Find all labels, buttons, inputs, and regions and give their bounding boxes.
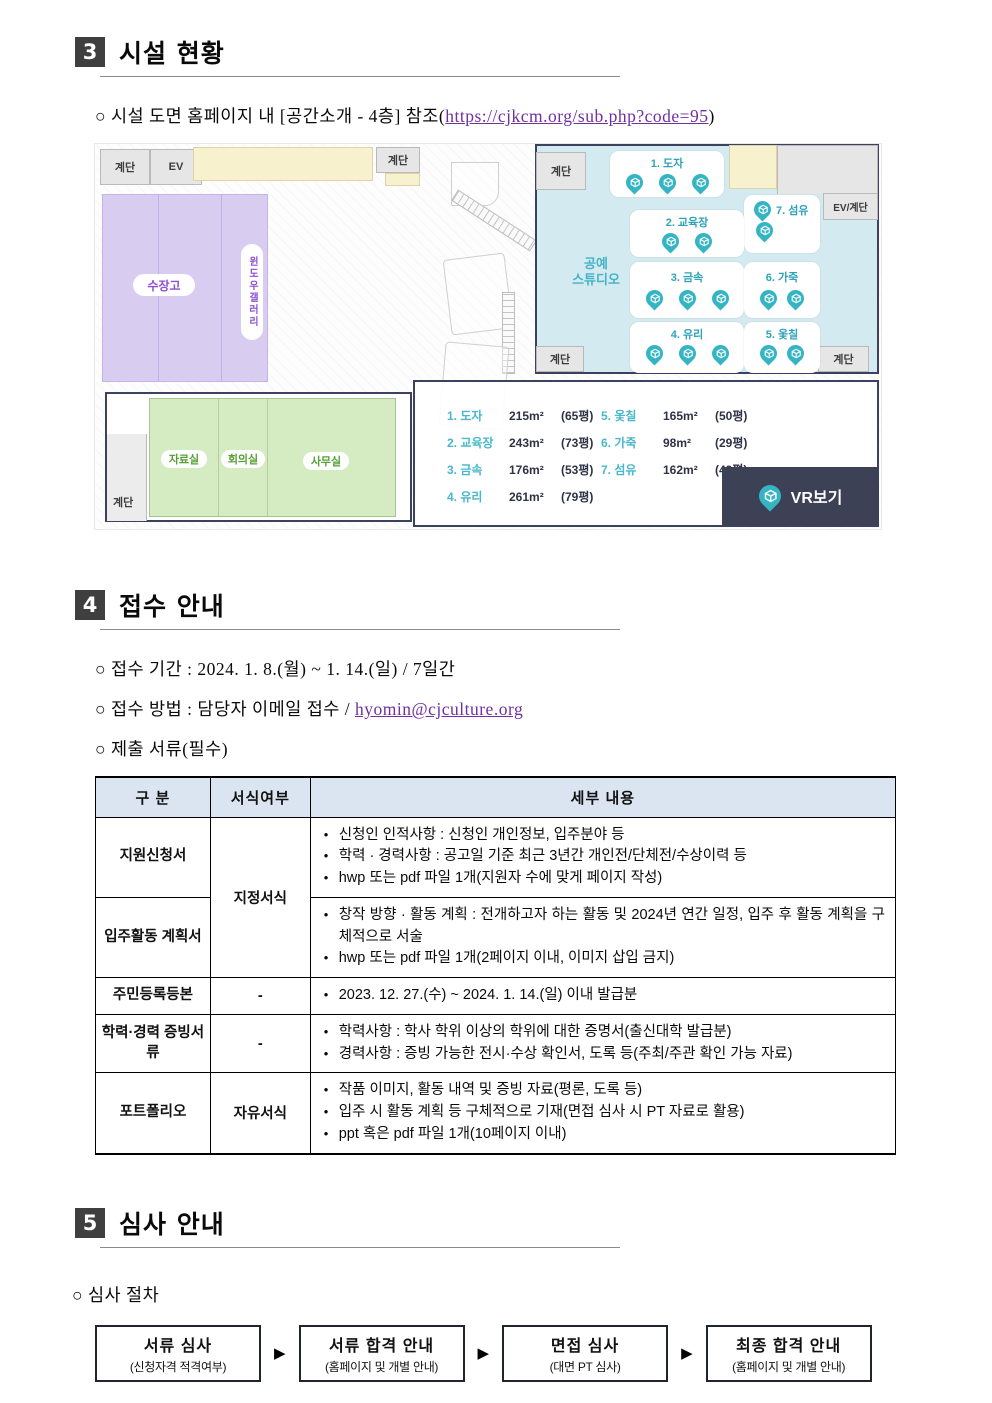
circle-bullet-icon: ○: [95, 659, 106, 679]
document-page: 3 시설 현황 ○ 시설 도면 홈페이지 내 [공간소개 - 4층] 참조(ht…: [0, 0, 992, 1382]
location-pin-icon: [642, 341, 666, 365]
reception-email-link[interactable]: hyomin@cjculture.org: [355, 699, 523, 719]
row-category: 지원신청서: [96, 817, 211, 897]
section-review: 5 심사 안내: [75, 1205, 992, 1248]
reception-method: ○ 접수 방법 : 담당자 이메일 접수 / hyomin@cjculture.…: [95, 696, 992, 721]
row-detail: 창작 방향 · 활동 계획 : 전개하고자 하는 활동 및 2024년 연간 일…: [310, 897, 895, 977]
flow-step-document-review: 서류 심사 (신청자격 적격여부): [95, 1325, 261, 1382]
section-number-badge: 4: [75, 590, 105, 620]
zone-glass: 4. 유리: [630, 322, 744, 373]
zone-metal: 3. 금속: [630, 262, 744, 318]
storage-label: 수장고: [133, 274, 195, 296]
vr-view-button: VR보기: [722, 467, 879, 525]
archive-room-label: 자료실: [161, 450, 207, 468]
row-format: -: [210, 978, 310, 1015]
circle-bullet-icon: ○: [95, 739, 106, 759]
location-pin-icon: [750, 197, 774, 221]
stairs-room: 계단: [818, 346, 869, 372]
stairs-room: 계단: [100, 149, 150, 185]
review-procedure-label: ○ 심사 절차: [72, 1282, 992, 1307]
location-pin-icon: [756, 341, 780, 365]
row-category: 주민등록등본: [96, 978, 211, 1015]
reception-period: ○ 접수 기간 : 2024. 1. 8.(월) ~ 1. 14.(일) / 7…: [95, 656, 992, 681]
review-process-flow: 서류 심사 (신청자격 적격여부) ▶ 서류 합격 안내 (홈페이지 및 개별 …: [95, 1325, 992, 1382]
row-category: 포트폴리오: [96, 1073, 211, 1154]
flow-arrow-icon: ▶: [478, 1344, 490, 1362]
reception-docs: ○ 제출 서류(필수): [95, 736, 992, 761]
table-header-row: 구 분 서식여부 세부 내용: [96, 777, 896, 817]
ev-stairs-label: EV/계단: [823, 193, 878, 220]
legend-item: 6. 가죽98m²(29평): [601, 429, 747, 456]
section-number-badge: 5: [75, 1208, 105, 1238]
stairs-room: 계단: [536, 346, 584, 372]
stairs-label: 계단: [113, 494, 133, 510]
section-facility: 3 시설 현황: [75, 34, 992, 77]
row-format: 자유서식: [210, 1073, 310, 1154]
floorplan-image: 계단 EV 계단 수장고 윈도우갤러리 계단 계단 EV/계단 계단 공예 스튜: [95, 144, 881, 529]
section-underline: [100, 76, 620, 77]
location-pin-icon: [708, 341, 732, 365]
column-header-detail: 세부 내용: [310, 777, 895, 817]
section-title: 시설 현황: [119, 34, 225, 70]
flow-step-document-pass-notice: 서류 합격 안내 (홈페이지 및 개별 안내): [299, 1325, 465, 1382]
row-category: 학력·경력 증빙서류: [96, 1014, 211, 1073]
circle-bullet-icon: ○: [72, 1285, 83, 1305]
location-pin-icon: [655, 170, 679, 194]
submission-documents-table: 구 분 서식여부 세부 내용 지원신청서 지정서식 신청인 인적사항 : 신청인…: [95, 776, 896, 1155]
location-pin-icon: [783, 286, 807, 310]
location-pin-icon: [658, 229, 682, 253]
circle-bullet-icon: ○: [95, 699, 106, 719]
location-pin-icon: [688, 170, 712, 194]
flow-arrow-icon: ▶: [274, 1344, 286, 1362]
circle-bullet-icon: ○: [95, 106, 106, 126]
row-category: 입주활동 계획서: [96, 897, 211, 977]
zone-leather: 6. 가죽: [744, 262, 820, 318]
zone-lacquer: 5. 옻칠: [744, 322, 820, 373]
row-format: 지정서식: [210, 817, 310, 978]
zone-ceramics: 1. 도자: [610, 151, 724, 197]
location-pin-icon: [691, 229, 715, 253]
location-pin-icon: [675, 286, 699, 310]
row-detail: 학력사항 : 학사 학위 이상의 학위에 대한 증명서(출신대학 발급분) 경력…: [310, 1014, 895, 1073]
facility-floorplan-link[interactable]: https://cjkcm.org/sub.php?code=95: [445, 106, 708, 126]
location-pin-icon: [622, 170, 646, 194]
legend-item: 2. 교육장243m²(73평): [447, 429, 593, 456]
legend-item: 1. 도자215m²(65평): [447, 402, 593, 429]
section-number-badge: 3: [75, 37, 105, 67]
office-block: 계단 자료실 회의실 사무실: [105, 392, 412, 522]
yellow-zone: [385, 173, 420, 186]
facility-note: ○ 시설 도면 홈페이지 내 [공간소개 - 4층] 참조(https://cj…: [95, 103, 992, 128]
craft-studio-label: 공예 스튜디오: [553, 256, 639, 289]
legend-item: 5. 옻칠165m²(50평): [601, 402, 747, 429]
table-row: 지원신청서 지정서식 신청인 인적사항 : 신청인 개인정보, 입주분야 등 학…: [96, 817, 896, 897]
legend-item: 4. 유리261m²(79평): [447, 483, 593, 510]
row-detail: 작품 이미지, 활동 내역 및 증빙 자료(평론, 도록 등) 입주 시 활동 …: [310, 1073, 895, 1154]
zone-education: 2. 교육장: [630, 210, 744, 257]
row-detail: 2023. 12. 27.(수) ~ 2024. 1. 14.(일) 이내 발급…: [310, 978, 895, 1015]
facility-note-suffix: ): [709, 106, 715, 126]
location-pin-icon: [675, 341, 699, 365]
section-underline: [100, 1247, 620, 1248]
flow-arrow-icon: ▶: [681, 1344, 693, 1362]
yellow-zone: [193, 147, 373, 181]
section-underline: [100, 629, 620, 630]
table-row: 주민등록등본 - 2023. 12. 27.(수) ~ 2024. 1. 14.…: [96, 978, 896, 1015]
craft-studio-area: 계단 계단 EV/계단 계단 공예 스튜디오 1. 도자: [535, 144, 879, 374]
location-pin-icon: [756, 286, 780, 310]
column-header-format: 서식여부: [210, 777, 310, 817]
section-title: 심사 안내: [119, 1205, 225, 1241]
row-detail: 신청인 인적사항 : 신청인 개인정보, 입주분야 등 학력 · 경력사항 : …: [310, 817, 895, 897]
section-title: 접수 안내: [119, 587, 225, 623]
stairs-room: 계단: [536, 152, 586, 190]
row-format: -: [210, 1014, 310, 1073]
section-reception: 4 접수 안내: [75, 587, 992, 630]
location-pin-icon: [752, 218, 776, 242]
stairs-room: 계단: [376, 147, 420, 173]
location-pin-icon: [708, 286, 732, 310]
location-pin-icon: [754, 480, 785, 511]
meeting-room-label: 회의실: [221, 450, 265, 468]
zone-textile: 7. 섬유: [744, 195, 820, 253]
table-row: 학력·경력 증빙서류 - 학력사항 : 학사 학위 이상의 학위에 대한 증명서…: [96, 1014, 896, 1073]
column-header-category: 구 분: [96, 777, 211, 817]
area-legend: 1. 도자215m²(65평) 2. 교육장243m²(73평) 3. 금속17…: [413, 380, 879, 527]
office-room-label: 사무실: [303, 452, 349, 470]
location-pin-icon: [642, 286, 666, 310]
location-pin-icon: [783, 341, 807, 365]
flow-step-final-pass-notice: 최종 합격 안내 (홈페이지 및 개별 안내): [706, 1325, 872, 1382]
window-gallery-label: 윈도우갤러리: [241, 244, 263, 340]
facility-note-text: 시설 도면 홈페이지 내 [공간소개 - 4층] 참조(: [111, 106, 445, 126]
legend-item: 3. 금속176m²(53평): [447, 456, 593, 483]
yellow-zone: [729, 145, 777, 189]
flow-step-interview-review: 면접 심사 (대면 PT 심사): [502, 1325, 668, 1382]
table-row: 포트폴리오 자유서식 작품 이미지, 활동 내역 및 증빙 자료(평론, 도록 …: [96, 1073, 896, 1154]
ev-stairs-room: [777, 145, 878, 194]
